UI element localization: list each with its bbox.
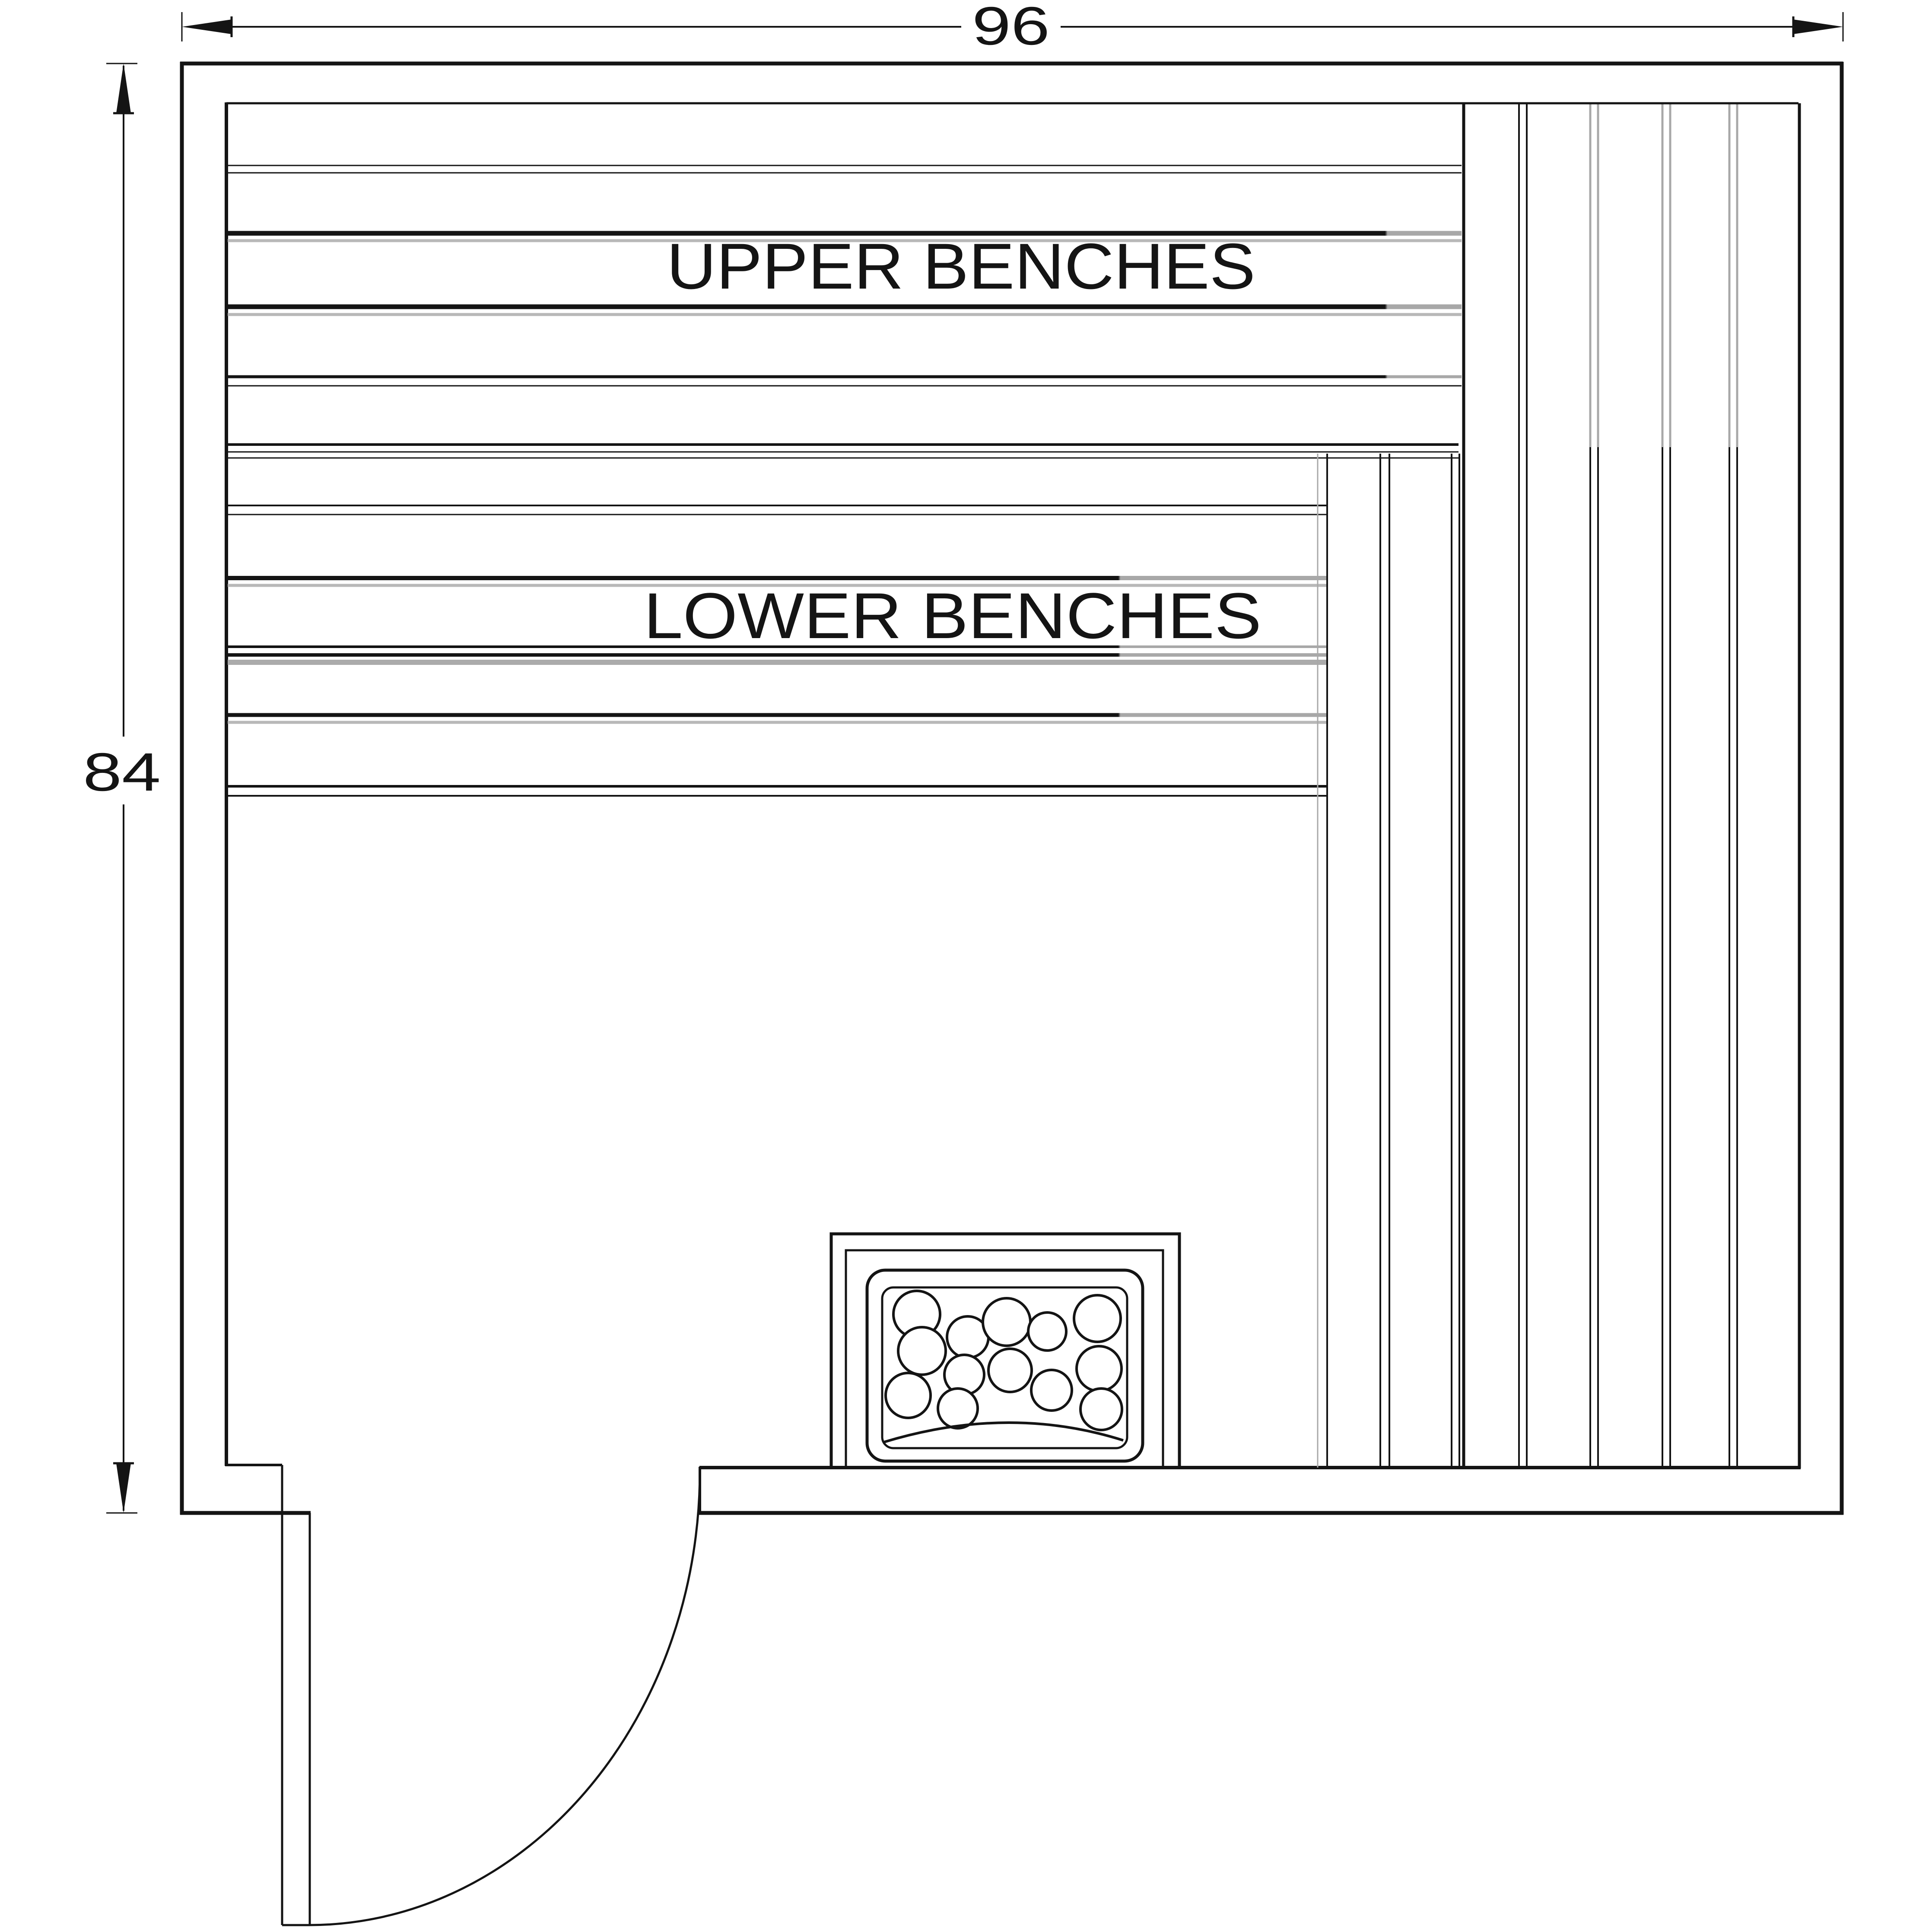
rock — [1077, 1346, 1122, 1391]
rock — [938, 1389, 978, 1428]
rock — [886, 1373, 931, 1418]
sauna-floor-plan: 96 84 — [0, 0, 1932, 1932]
rock — [1080, 1389, 1122, 1430]
lower-bench-label: LOWER BENCHES — [644, 579, 1262, 652]
rock — [1028, 1312, 1066, 1350]
rock — [1074, 1295, 1121, 1342]
upper-bench-label: UPPER BENCHES — [667, 230, 1255, 302]
floor-plan-canvas: 96 84 — [0, 0, 1932, 1932]
height-dimension-value: 84 — [83, 742, 161, 802]
rock — [1031, 1370, 1072, 1411]
rock — [988, 1349, 1032, 1392]
rock — [898, 1327, 946, 1375]
width-dimension-value: 96 — [972, 0, 1050, 56]
rock — [983, 1298, 1030, 1346]
